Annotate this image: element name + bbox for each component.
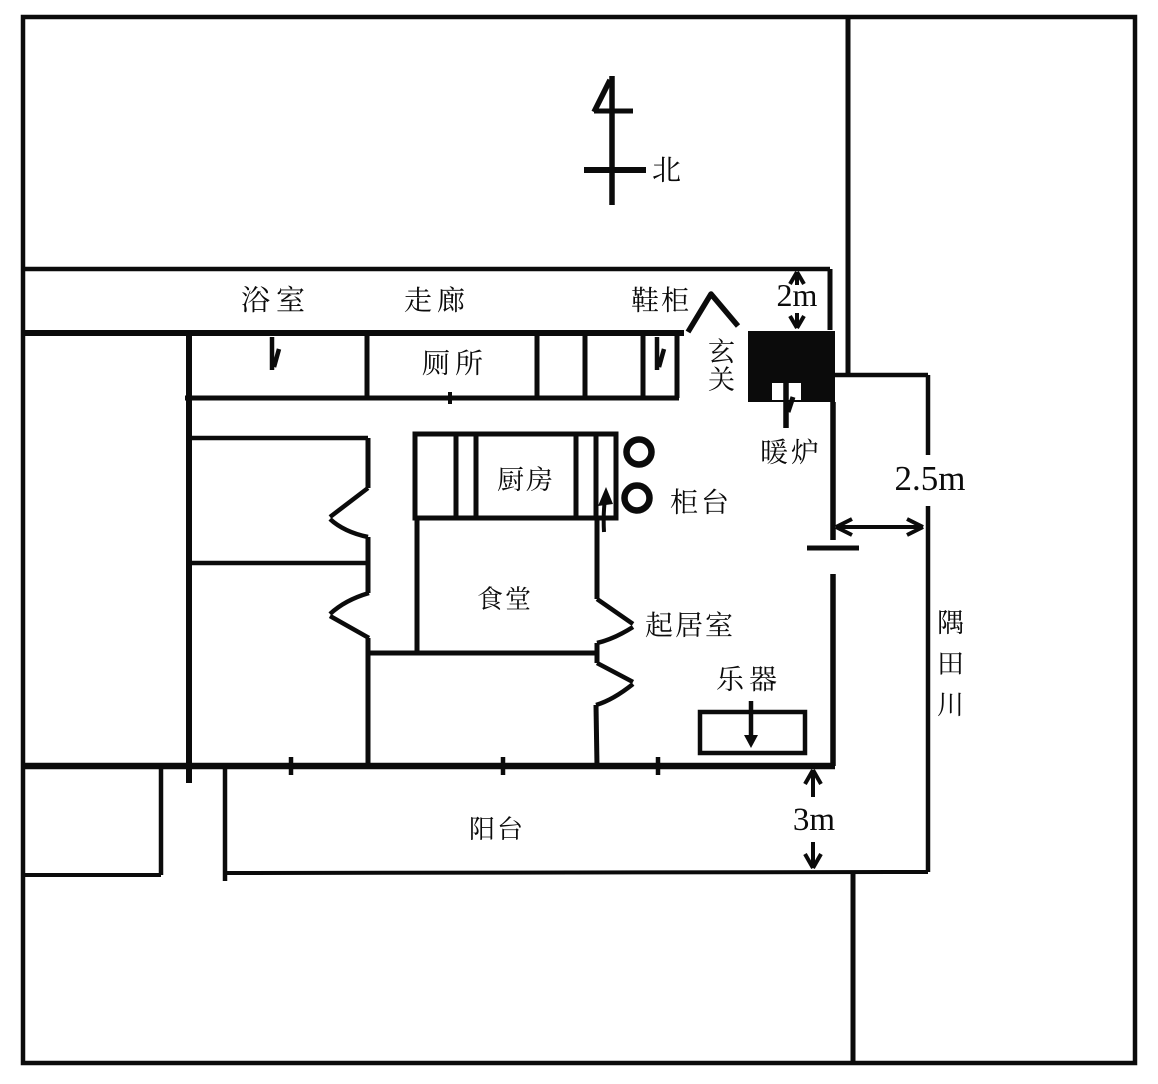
svg-text:3m: 3m <box>793 802 836 838</box>
svg-text:2.5m: 2.5m <box>895 459 966 498</box>
svg-text:2m: 2m <box>777 277 818 313</box>
